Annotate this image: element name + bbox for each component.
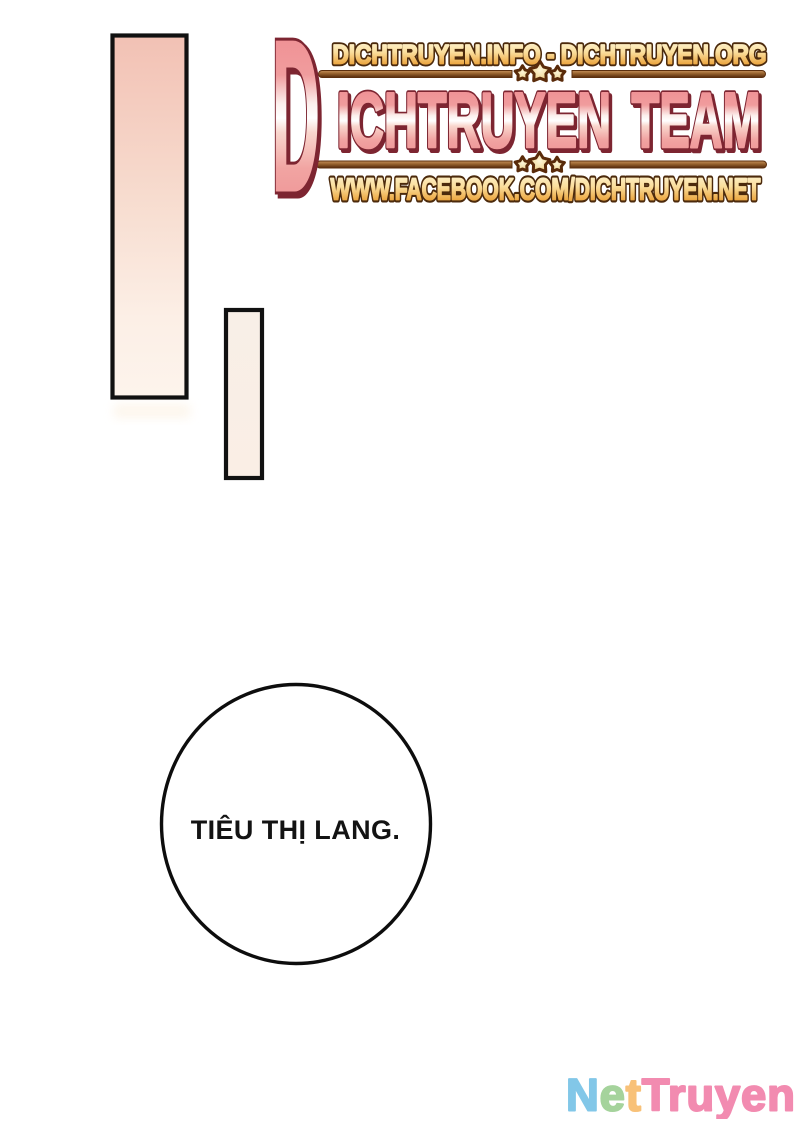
svg-text:WWW.FACEBOOK.COM/DICHTRUYEN.NE: WWW.FACEBOOK.COM/DICHTRUYEN.NET [331,172,761,207]
svg-text:D: D [272,0,320,236]
svg-text:TIÊU THỊ LANG.: TIÊU THỊ LANG. [191,814,401,845]
svg-text:ICHTRUYEN: ICHTRUYEN [337,76,611,164]
svg-text:NetTruyen: NetTruyen [566,1070,796,1120]
svg-text:DICHTRUYEN.INFO - DICHTRUYEN.O: DICHTRUYEN.INFO - DICHTRUYEN.ORG [333,40,767,70]
svg-text:TEAM: TEAM [632,76,761,164]
